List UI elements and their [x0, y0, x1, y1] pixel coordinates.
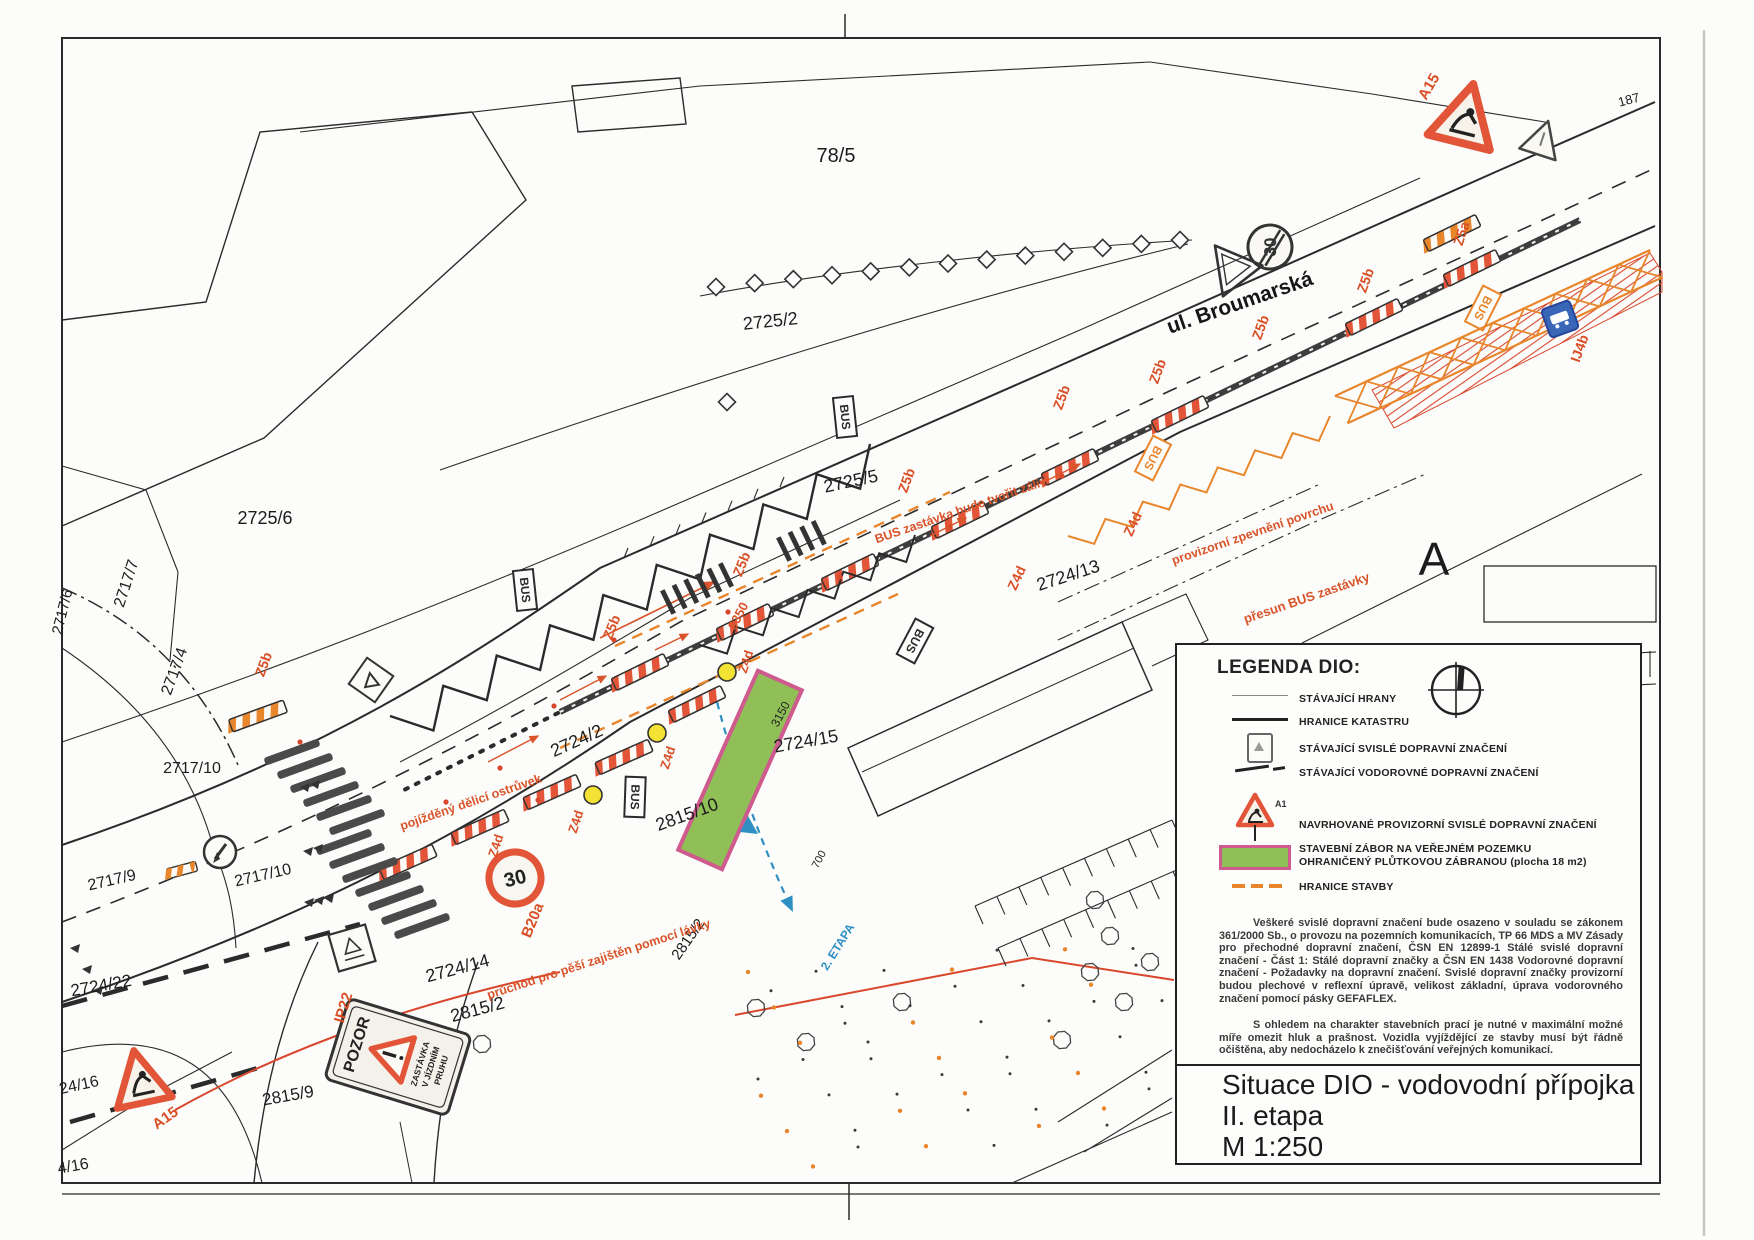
parking-tick: [1063, 868, 1071, 886]
thick-line-symbol: [1232, 718, 1288, 721]
parcel-label: 2717/6: [49, 588, 77, 637]
corner-number-label: 187: [1616, 90, 1641, 110]
parking-tick: [1086, 910, 1094, 928]
island-triangle-mark: [82, 965, 92, 974]
fence-diamond-marker: [719, 394, 736, 411]
fence-diamond-marker: [1094, 239, 1111, 256]
bus-stop-label: BUS: [628, 784, 643, 810]
a15-symbol-icon: A15: [1233, 791, 1287, 843]
bus-stop-label: BUS: [517, 577, 534, 604]
ground-dot: [841, 1005, 844, 1008]
sign-box-symbol: [1247, 733, 1273, 763]
barrier-board: [1419, 214, 1481, 253]
drawing-stage: II. etapa: [1222, 1100, 1634, 1131]
a15-roadworks-sign-left: [106, 1045, 172, 1108]
ground-dot: [1119, 1035, 1122, 1038]
street-lamp-marker: [648, 724, 666, 742]
tree-marker: [747, 999, 764, 1016]
ground-dot: [924, 1144, 928, 1148]
ground-dot: [802, 1058, 805, 1061]
ground-dot: [759, 1094, 763, 1098]
fence-diamond-marker: [940, 255, 957, 272]
ground-dot: [954, 985, 957, 988]
legend-heading: LEGENDA DIO:: [1217, 657, 1361, 679]
parking-tick: [1084, 858, 1092, 876]
ground-dot: [811, 1164, 815, 1168]
ground-dot: [857, 1146, 860, 1149]
direction-arrow-circle-sign: [204, 836, 236, 868]
bus-stop-label: BUS: [837, 404, 854, 431]
barrier-board: [607, 653, 669, 692]
drawing-scale: M 1:250: [1222, 1131, 1634, 1162]
bay-tick: [780, 477, 784, 487]
barrier-board: [1439, 249, 1501, 288]
ground-dot: [1035, 1108, 1038, 1111]
speed-limit-30-end-sign: 30: [1243, 220, 1296, 273]
sign-code-label: Z5b: [1249, 313, 1273, 342]
barrier-board: [590, 739, 653, 777]
ip22-info-sign: [328, 924, 375, 971]
ground-dot: [844, 1022, 847, 1025]
parcel-label: 2725/2: [742, 308, 799, 334]
fence-diamond-marker: [1017, 247, 1034, 264]
sign-position-dot: [497, 765, 502, 770]
diamond-sign: [345, 654, 397, 706]
fence-diamond-marker: [862, 263, 879, 280]
ground-dot: [883, 969, 886, 972]
barrier-board: [224, 700, 288, 734]
parcel-label: 24/16: [58, 1073, 101, 1098]
fence-diamond-marker: [1056, 243, 1073, 260]
ground-dot: [1050, 1035, 1054, 1039]
street-lamp-marker: [718, 663, 736, 681]
parcel-label: 2717/10: [163, 760, 221, 777]
fence-diamond-marker: [1172, 232, 1189, 249]
site-edge-red-lines: [175, 958, 1174, 1110]
dash-symbol-short: [1273, 766, 1285, 771]
area-letter-label: A: [1419, 533, 1450, 585]
provisional-surface-hatch: [1372, 253, 1662, 428]
note-paragraph-2: S ohledem na charakter stavebních prací …: [1219, 1019, 1623, 1057]
fence-diamond-marker: [785, 271, 802, 288]
sign-position-dot: [297, 739, 302, 744]
ground-dot: [1009, 1072, 1012, 1075]
parcel-label: 2724/13: [1034, 556, 1102, 595]
parking-tick: [1019, 887, 1027, 905]
parking-tick: [1042, 929, 1050, 947]
fence-diamond-marker: [824, 267, 841, 284]
ground-dot: [785, 1129, 789, 1133]
ground-dot: [896, 1093, 899, 1096]
fence-diamond-marker: [746, 275, 763, 292]
sign-code-label: Z4d: [657, 744, 678, 771]
tree-marker: [1115, 993, 1132, 1010]
ground-dot: [867, 1041, 870, 1044]
note-paragraph-1: Veškeré svislé dopravní značení bude osa…: [1219, 917, 1623, 1005]
sign-code-label: Z5b: [1146, 357, 1170, 386]
ground-dot: [1135, 964, 1138, 967]
ground-dot: [1093, 1000, 1096, 1003]
island-triangle-mark: [70, 944, 80, 953]
parking-tick: [1129, 891, 1137, 909]
sign-position-dot: [535, 797, 540, 802]
ground-dot: [967, 1109, 970, 1112]
ground-dot: [1161, 999, 1164, 1002]
tree-marker: [473, 1035, 490, 1052]
ground-dot: [1022, 984, 1025, 987]
parcel-label: 2717/10: [233, 861, 293, 891]
sign-placement-arrow: [655, 634, 688, 650]
parcel-label: 2724/22: [69, 971, 133, 1000]
sign-code-label: Z5b: [252, 650, 276, 679]
ground-dot: [870, 1057, 873, 1060]
sign-code-label: Z5b: [1354, 266, 1378, 295]
parking-tick: [1020, 938, 1028, 956]
ground-dot: [993, 1144, 996, 1147]
parcel-label: 2724/2: [547, 720, 605, 761]
parking-tick: [997, 896, 1005, 914]
parcel-label: 2717/9: [86, 867, 138, 895]
legend-notes: Veškeré svislé dopravní značení bude osa…: [1219, 917, 1623, 1071]
parcel-label: 2717/7: [111, 558, 142, 610]
title-block: Situace DIO - vodovodní přípojka II. eta…: [1222, 1069, 1634, 1162]
sign-code-label: Z5b: [599, 613, 623, 642]
parking-tick: [1041, 877, 1049, 895]
ground-dot: [941, 1073, 944, 1076]
ground-dot: [937, 1056, 941, 1060]
ground-dot: [772, 1005, 776, 1009]
ground-dot: [898, 1109, 902, 1113]
north-compass-icon: [1427, 661, 1485, 719]
ground-dot: [1102, 1106, 1106, 1110]
parking-tick: [1107, 900, 1115, 918]
parking-tick: [1106, 849, 1114, 867]
a15-symbol-code: A15: [1275, 799, 1287, 809]
thin-line-symbol: [1232, 695, 1288, 696]
green-zone-symbol: [1219, 845, 1291, 870]
bay-tick: [754, 489, 758, 499]
street-name-label: ul. Broumarská: [1164, 267, 1316, 339]
ground-dot: [963, 1091, 967, 1095]
ground-dot: [909, 1004, 912, 1007]
parcel-label: 2717/4: [158, 645, 191, 697]
shelter-bar: [776, 536, 792, 562]
bus-stop-marker: BUS: [1135, 436, 1171, 481]
ground-dot: [1076, 1071, 1080, 1075]
sign-position-dot: [837, 574, 842, 579]
legend-box: LEGENDA DIO: STÁVAJÍCÍ HRANY HRANICE KAT…: [1175, 643, 1642, 1165]
tree-marker: [1141, 953, 1158, 970]
parking-tick: [1128, 839, 1136, 857]
island-triangle-mark: [303, 847, 313, 856]
ground-dot: [757, 1078, 760, 1081]
ground-dot: [828, 1093, 831, 1096]
parking-tick: [1064, 919, 1072, 937]
ground-dot: [1063, 947, 1067, 951]
parcel-label: 2725/5: [822, 466, 880, 497]
bus-stop-marker: BUS: [624, 777, 645, 818]
island-triangle-mark: [314, 896, 324, 905]
ground-dot: [798, 1041, 802, 1045]
ground-dot: [815, 970, 818, 973]
fence-diamond-marker: [978, 251, 995, 268]
ground-dot: [1148, 1087, 1151, 1090]
tree-marker: [1101, 927, 1118, 944]
sign-code-label: Z4d: [565, 808, 586, 835]
ground-dot: [854, 1129, 857, 1132]
shelter-bar: [788, 531, 804, 557]
fence-diamond-marker: [1133, 235, 1150, 252]
ground-dot: [1006, 1056, 1009, 1059]
small-barrier-icon: [162, 861, 197, 879]
sign-code-label: Z4d: [1004, 563, 1029, 592]
barrier-board: [1147, 395, 1209, 434]
sign-code-label: A15: [1415, 71, 1443, 103]
bus-stop-marker: BUS: [897, 619, 933, 664]
sign-position-dot: [551, 703, 556, 708]
drawing-title: Situace DIO - vodovodní přípojka: [1222, 1069, 1634, 1100]
ground-dot: [746, 970, 750, 974]
sign-placement-arrow: [488, 736, 538, 762]
ground-dot: [1145, 1071, 1148, 1074]
parcel-label: 78/5: [817, 145, 856, 167]
ground-dot: [1089, 983, 1093, 987]
ground-dot: [1037, 1124, 1041, 1128]
ground-dot: [950, 967, 954, 971]
bus-stop-marker: BUS: [513, 569, 537, 611]
tree-marker: [1053, 1031, 1070, 1048]
barrier-board: [1341, 298, 1403, 337]
titleblock-separator: [1177, 1064, 1640, 1066]
fence-diamond-marker: [901, 259, 918, 276]
parking-tick: [1150, 830, 1158, 848]
bus-stop-marker: BUS: [833, 396, 857, 438]
map-annotation: provizorní zpevnění povrchu: [1170, 499, 1335, 568]
dimension-label: 700: [810, 849, 829, 871]
ground-dot: [1048, 1019, 1051, 1022]
ground-dot: [1132, 947, 1135, 950]
parcel-label: 2724/14: [423, 950, 491, 986]
ground-dot: [1106, 1124, 1109, 1127]
sign-code-label: Z5b: [895, 466, 919, 495]
shelter-bar: [799, 525, 815, 551]
sign-code-label: Z4d: [1120, 509, 1145, 538]
shelter-bar: [811, 520, 827, 546]
stage-annotation: 2. ETAPA: [818, 921, 858, 973]
ground-dot: [996, 949, 999, 952]
dash-symbol: [1235, 765, 1269, 773]
ground-dot: [911, 1020, 915, 1024]
parking-tick: [975, 906, 983, 924]
street-lamp-marker: [584, 786, 602, 804]
barrier-board: [664, 685, 726, 724]
sign-code-label: Z5b: [1050, 383, 1074, 412]
sign-code-label: Z5b: [729, 550, 753, 579]
parcel-label: 2725/6: [237, 508, 292, 528]
sign-code-label: Z4d: [735, 648, 756, 675]
fence-diamond-marker: [708, 279, 725, 296]
sign-code-label: Z5a: [1450, 219, 1473, 247]
parking-tick: [1151, 881, 1159, 899]
scanned-drawing-page: BUSBUSBUSBUSBUSBUS 30: [0, 0, 1754, 1240]
ground-dot: [980, 1020, 983, 1023]
tree-marker: [893, 993, 910, 1010]
orange-dash-symbol: [1232, 884, 1245, 888]
ground-dot: [770, 989, 773, 992]
